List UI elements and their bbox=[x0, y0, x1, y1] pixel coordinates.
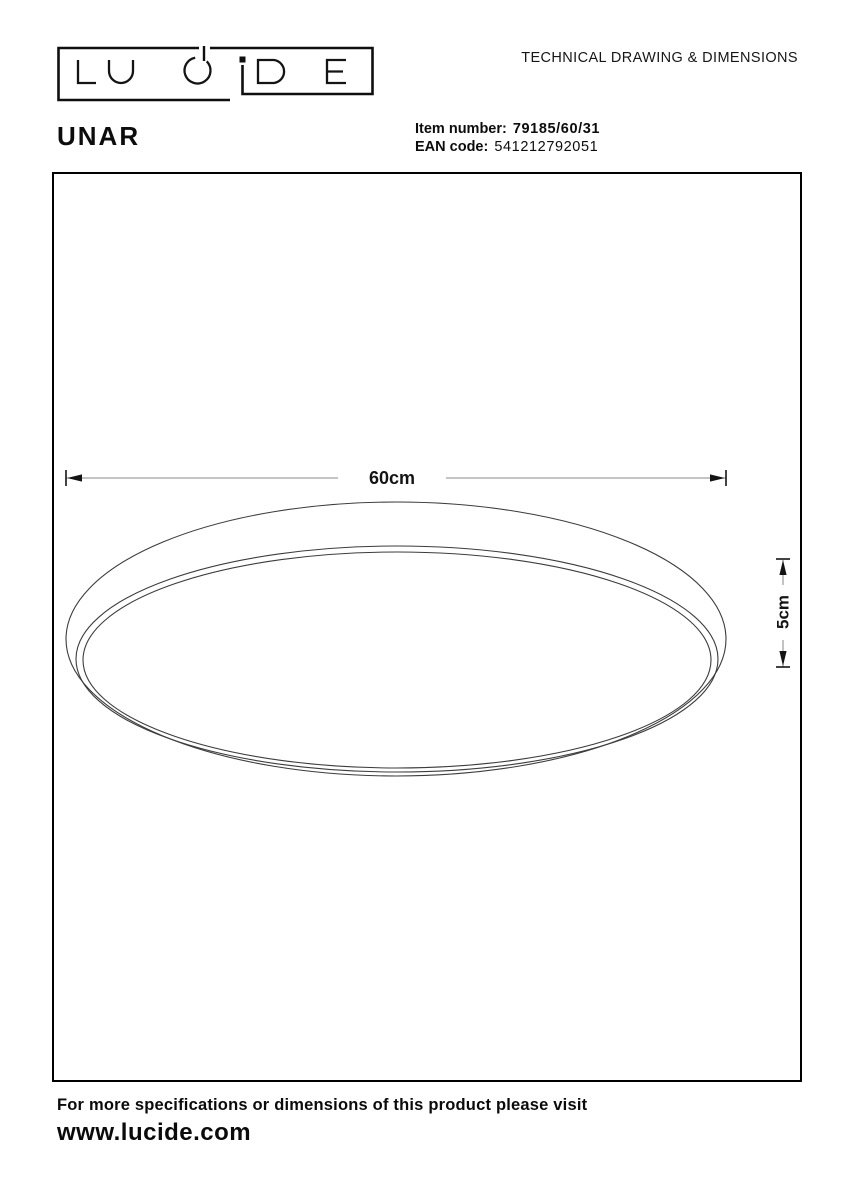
logo-i-dot bbox=[240, 57, 246, 63]
website-link[interactable]: www.lucide.com bbox=[57, 1119, 587, 1147]
width-dimension-label: 60cm bbox=[369, 468, 415, 488]
logo-frame-right bbox=[210, 48, 373, 94]
product-meta: Item number:79185/60/31 EAN code:5412127… bbox=[415, 120, 600, 156]
logo-letter-e bbox=[327, 60, 346, 83]
height-dimension-label: 5cm bbox=[774, 595, 793, 629]
technical-drawing-panel: 60cm 5cm bbox=[52, 172, 802, 1082]
doc-type-title: TECHNICAL DRAWING & DIMENSIONS bbox=[521, 50, 798, 66]
item-number-label: Item number: bbox=[415, 121, 507, 137]
spec-sheet-page: TECHNICAL DRAWING & DIMENSIONS UNAR Item… bbox=[0, 0, 848, 1200]
logo-letter-u bbox=[109, 60, 133, 83]
logo-letter-c bbox=[185, 58, 211, 84]
product-name: UNAR bbox=[57, 121, 140, 152]
ean-code-label: EAN code: bbox=[415, 139, 488, 155]
logo-letters bbox=[78, 58, 346, 84]
ean-code-value: 541212792051 bbox=[494, 139, 598, 155]
item-number-value: 79185/60/31 bbox=[513, 121, 600, 137]
item-number-row: Item number:79185/60/31 bbox=[415, 120, 600, 138]
logo-letter-l bbox=[78, 60, 96, 83]
footer: For more specifications or dimensions of… bbox=[57, 1096, 587, 1147]
logo-letter-d bbox=[258, 60, 284, 83]
lucide-logo bbox=[57, 44, 375, 104]
ean-code-row: EAN code:541212792051 bbox=[415, 138, 600, 156]
drawing-border bbox=[53, 173, 801, 1081]
footer-note: For more specifications or dimensions of… bbox=[57, 1096, 587, 1115]
